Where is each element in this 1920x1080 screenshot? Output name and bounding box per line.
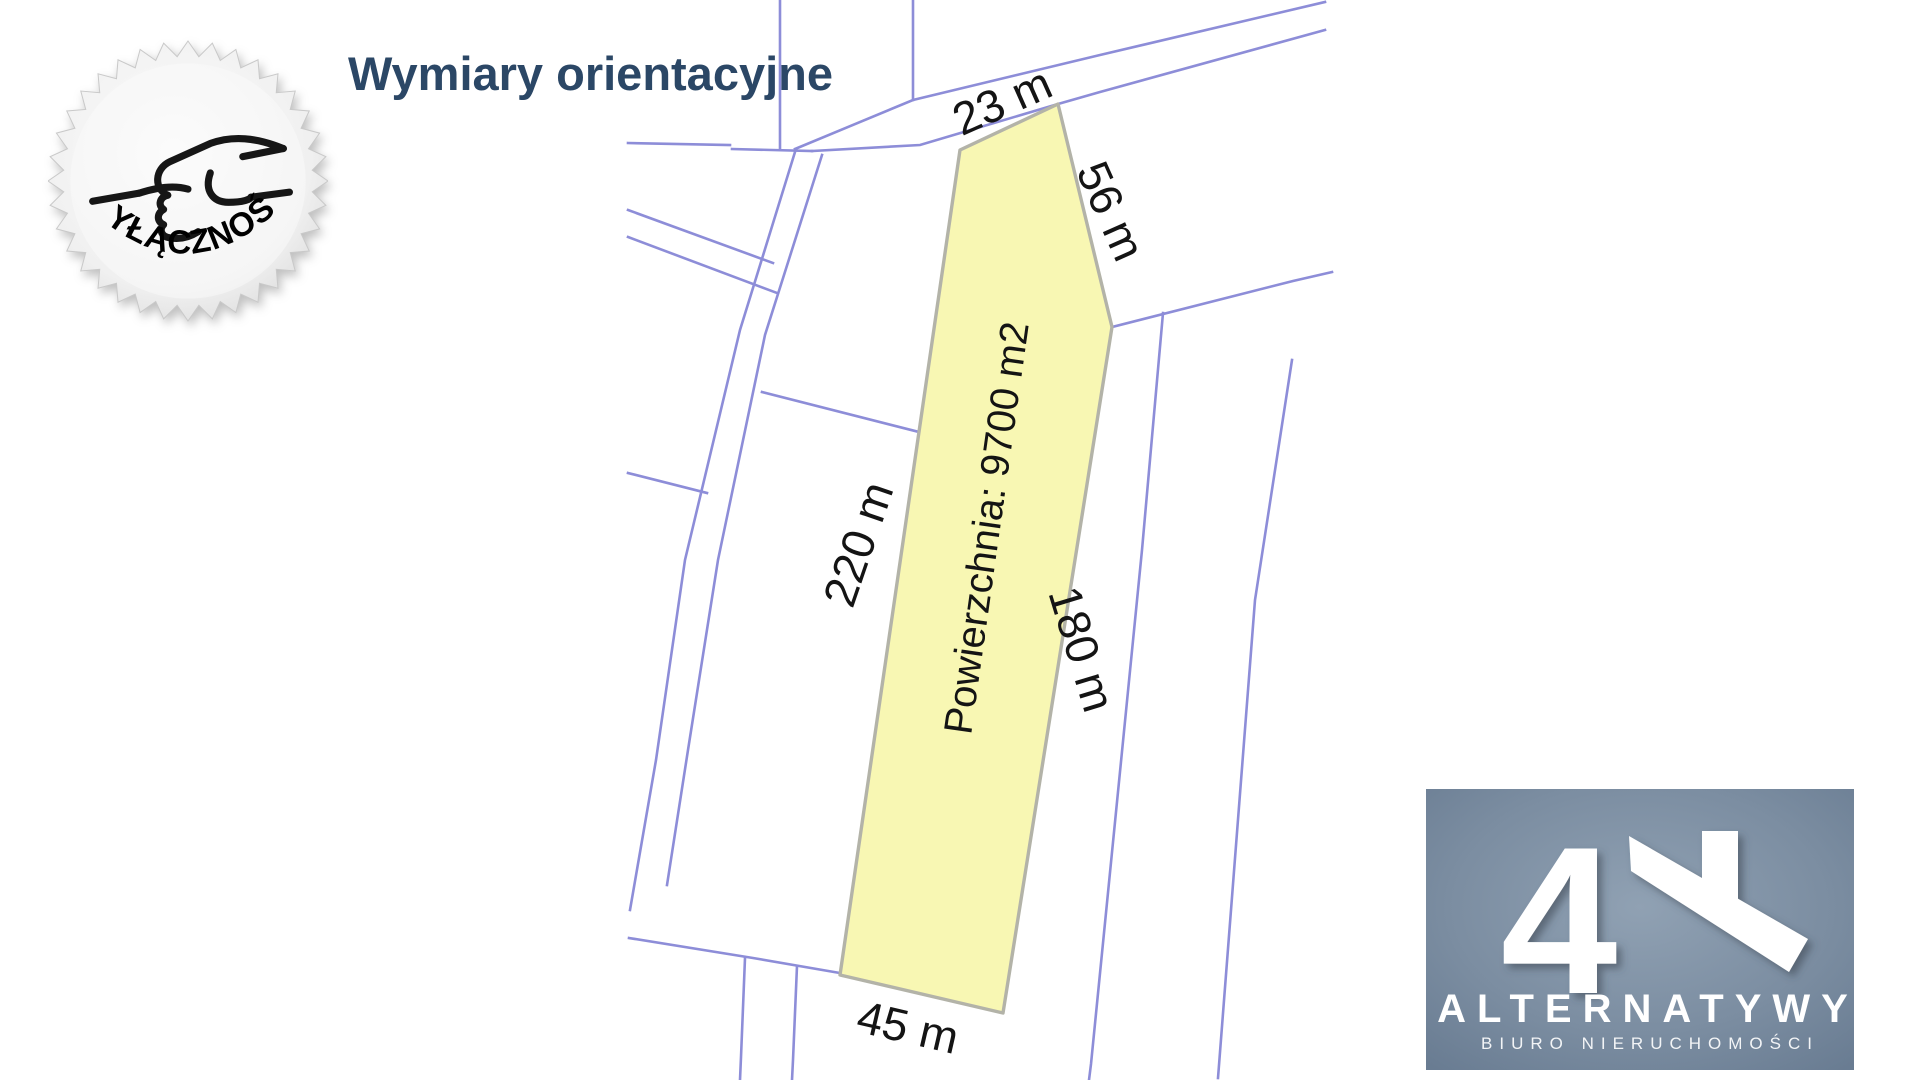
logo-name: ALTERNATYWY — [1437, 987, 1854, 1031]
left-road-outer-edge — [667, 155, 822, 885]
badge-inner-circle — [70, 63, 305, 298]
page-background: WYŁĄCZNOŚĆ Wymiary orientacyjne — [0, 0, 1920, 1080]
left-road-inner-edge — [630, 152, 795, 910]
dimension-label-left: 220 m — [813, 475, 904, 613]
agency-logo: 4 ALTERNATYWY BIURO NIERUCHOMOŚCI — [1426, 789, 1854, 1070]
cadastral-map: 23 m 56 m 220 m Powierzchnia: 9700 m2 18… — [540, 0, 1340, 1080]
exclusivity-badge: WYŁĄCZNOŚĆ — [48, 40, 328, 322]
road-lower-edge — [812, 30, 1325, 151]
logo-subtitle: BIURO NIERUCHOMOŚCI — [1481, 1034, 1819, 1053]
